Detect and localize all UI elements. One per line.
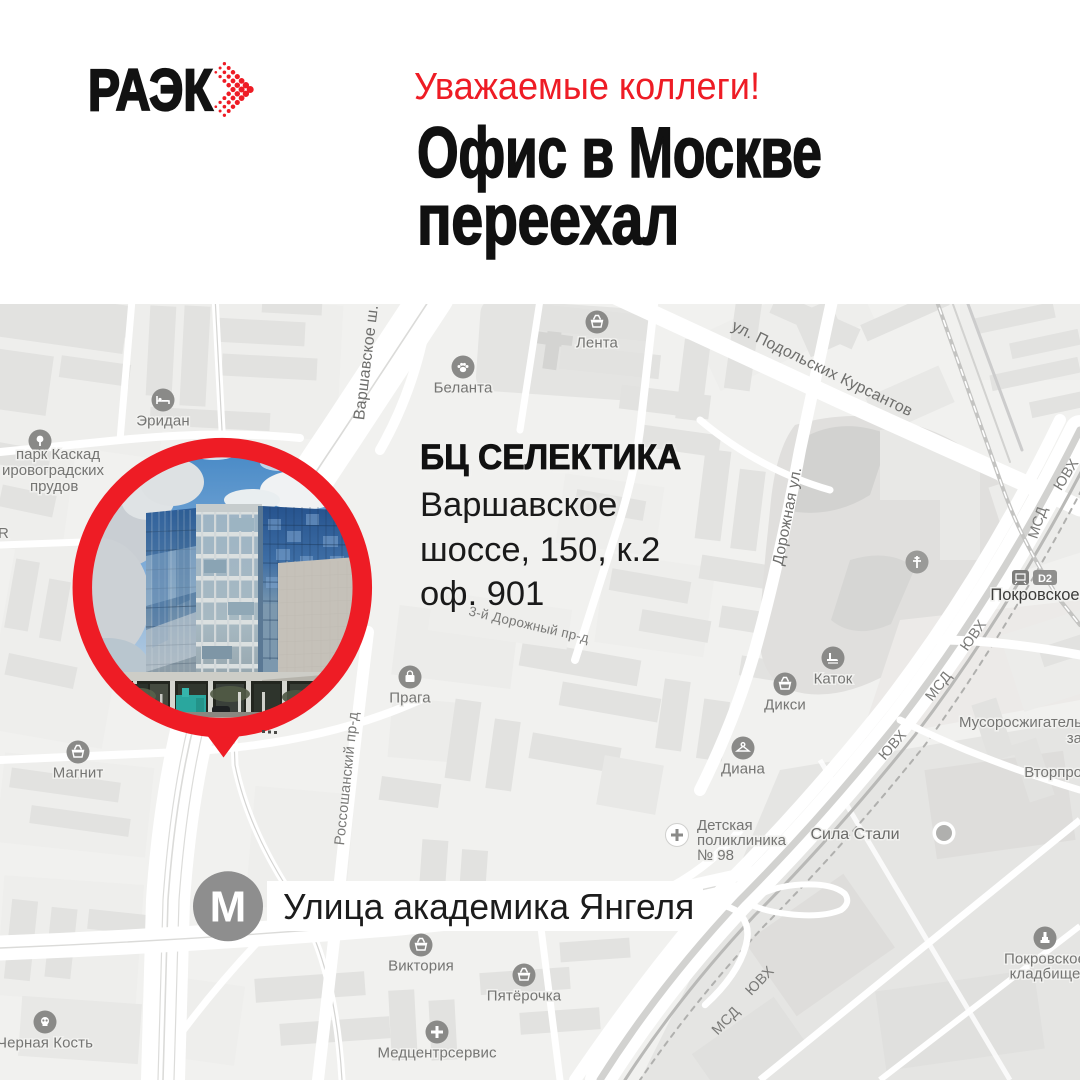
svg-text:Магнит: Магнит	[53, 765, 104, 782]
svg-text:Медцентрсервис: Медцентрсервис	[377, 1045, 497, 1062]
svg-text:D2: D2	[1038, 573, 1052, 585]
svg-text:Виктория: Виктория	[388, 958, 454, 975]
svg-text:ировоградских: ировоградских	[2, 462, 105, 479]
svg-text:прудов: прудов	[30, 478, 78, 495]
svg-text:№ 98: № 98	[697, 847, 734, 864]
svg-text:Мусоросжигатель: Мусоросжигатель	[959, 714, 1080, 731]
svg-text:кладбище: кладбище	[1010, 966, 1080, 983]
svg-text:за: за	[1067, 730, 1080, 747]
svg-text:Прага: Прага	[389, 690, 431, 707]
svg-text:Диана: Диана	[721, 761, 766, 778]
svg-text:Дикси: Дикси	[764, 697, 806, 714]
svg-text:R: R	[0, 525, 9, 542]
svg-text:Сила Стали: Сила Стали	[810, 826, 899, 843]
svg-text:Покровское: Покровское	[990, 586, 1079, 604]
svg-text:Пятёрочка: Пятёрочка	[487, 988, 562, 1005]
svg-text:парк Каскад: парк Каскад	[16, 446, 100, 463]
svg-text:Черная Кость: Черная Кость	[0, 1035, 93, 1052]
svg-text:Эридан: Эридан	[136, 413, 189, 430]
svg-text:Вторпро: Вторпро	[1024, 764, 1080, 781]
svg-text:Лента: Лента	[576, 335, 619, 352]
svg-text:М: М	[210, 883, 247, 932]
svg-text:Каток: Каток	[814, 671, 853, 688]
svg-text:Беланта: Беланта	[434, 380, 493, 397]
